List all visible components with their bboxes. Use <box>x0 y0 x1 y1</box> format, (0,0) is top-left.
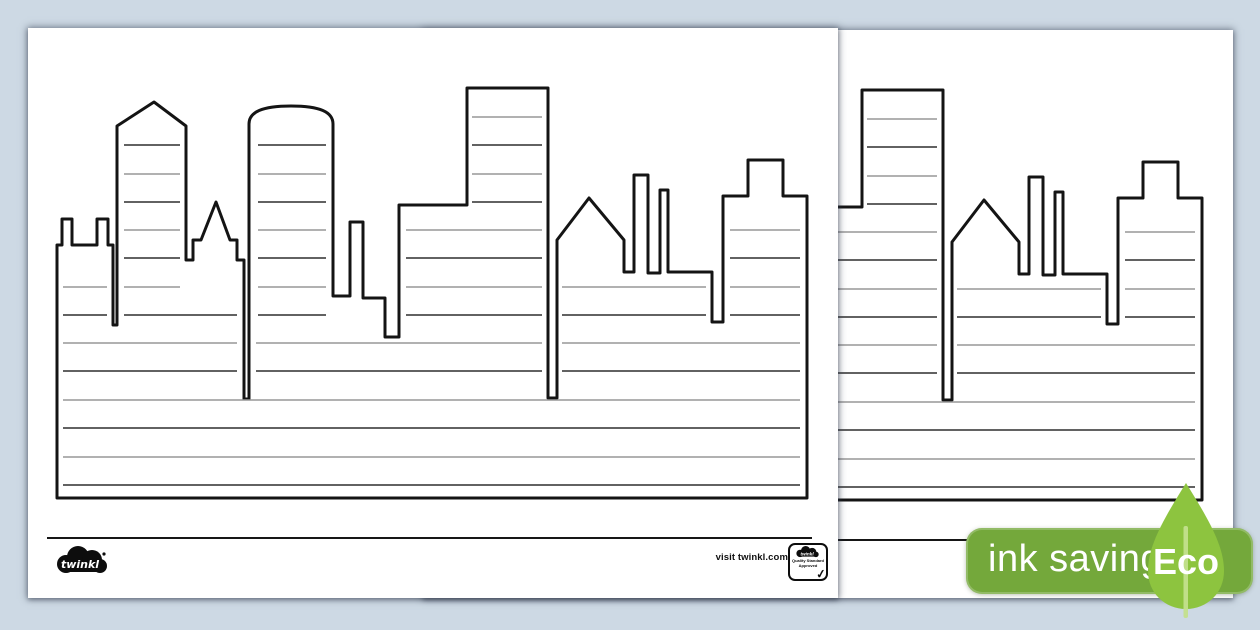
footer-divider <box>47 537 812 539</box>
quality-standard-badge: twinkl Quality Standard Approved ✓ <box>788 543 828 581</box>
ink-saving-label: ink saving <box>988 538 1162 581</box>
visit-twinkl-text: visit twinkl.com <box>704 552 788 563</box>
badge-twinkl-text: twinkl <box>801 551 815 556</box>
twinkl-logo-text: twinkl <box>61 558 99 571</box>
eco-label: Eco <box>1146 541 1226 583</box>
skyline-drawing-front <box>28 28 838 598</box>
badge-check-icon: ✓ <box>815 566 827 581</box>
worksheet-page-front: twinkl visit twinkl.com twinkl Quality S… <box>28 28 838 598</box>
twinkl-logo: twinkl <box>54 545 112 577</box>
